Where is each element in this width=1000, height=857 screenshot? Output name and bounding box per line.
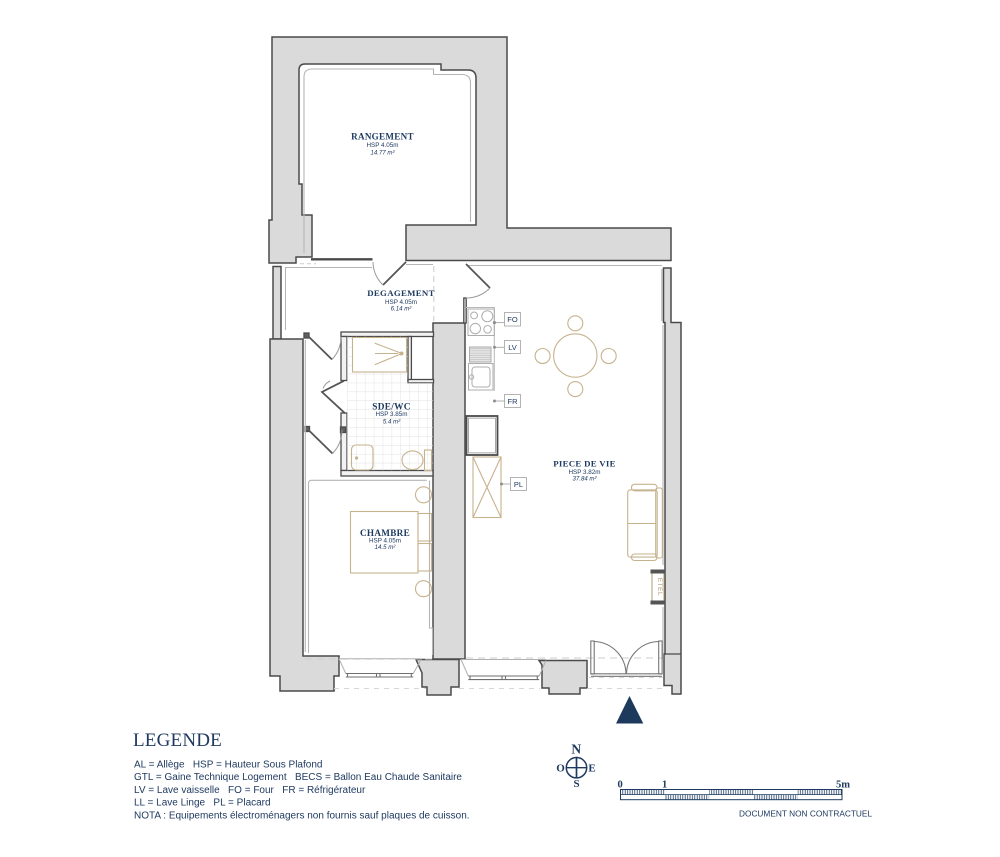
- svg-text:S: S: [573, 778, 579, 790]
- svg-text:GTL = Gaine Technique Logement: GTL = Gaine Technique Logement BECS = Ba…: [134, 772, 462, 783]
- svg-text:DOCUMENT NON CONTRACTUEL: DOCUMENT NON CONTRACTUEL: [739, 809, 872, 819]
- svg-text:NOTA : Equipements électroména: NOTA : Equipements électroménagers non f…: [134, 810, 470, 821]
- svg-text:HSP 4.05m: HSP 4.05m: [366, 142, 398, 149]
- svg-text:FR: FR: [508, 397, 519, 406]
- svg-text:14.5 m²: 14.5 m²: [375, 544, 397, 551]
- svg-text:5.4 m²: 5.4 m²: [383, 419, 401, 426]
- svg-text:AL = Allège HSP = Hauteur So: AL = Allège HSP = Hauteur Sous Plafond: [134, 760, 322, 771]
- svg-text:HSP 3.85m: HSP 3.85m: [375, 411, 407, 418]
- svg-text:5m: 5m: [836, 780, 850, 791]
- svg-text:LV: LV: [508, 343, 517, 352]
- svg-text:14.77 m²: 14.77 m²: [370, 150, 395, 157]
- svg-text:ETEL: ETEL: [656, 578, 663, 596]
- svg-text:LV = Lave vaisselle FO = Fou: LV = Lave vaisselle FO = Four FR = Réfri…: [134, 785, 366, 796]
- svg-text:0: 0: [618, 780, 623, 791]
- svg-text:37.84 m²: 37.84 m²: [572, 476, 597, 483]
- svg-text:6.14 m²: 6.14 m²: [391, 306, 413, 313]
- svg-text:DEGAGEMENT: DEGAGEMENT: [367, 288, 435, 298]
- svg-text:LEGENDE: LEGENDE: [133, 730, 222, 751]
- svg-text:O: O: [556, 763, 565, 775]
- svg-text:1: 1: [662, 780, 667, 791]
- svg-text:N: N: [571, 742, 581, 757]
- svg-text:FO: FO: [507, 315, 518, 324]
- svg-text:RANGEMENT: RANGEMENT: [351, 132, 414, 142]
- svg-text:LL = Lave Linge PL = Placard: LL = Lave Linge PL = Placard: [134, 798, 271, 809]
- svg-text:PIECE DE VIE: PIECE DE VIE: [553, 458, 616, 468]
- svg-text:E: E: [588, 763, 595, 775]
- svg-text:PL: PL: [514, 480, 523, 489]
